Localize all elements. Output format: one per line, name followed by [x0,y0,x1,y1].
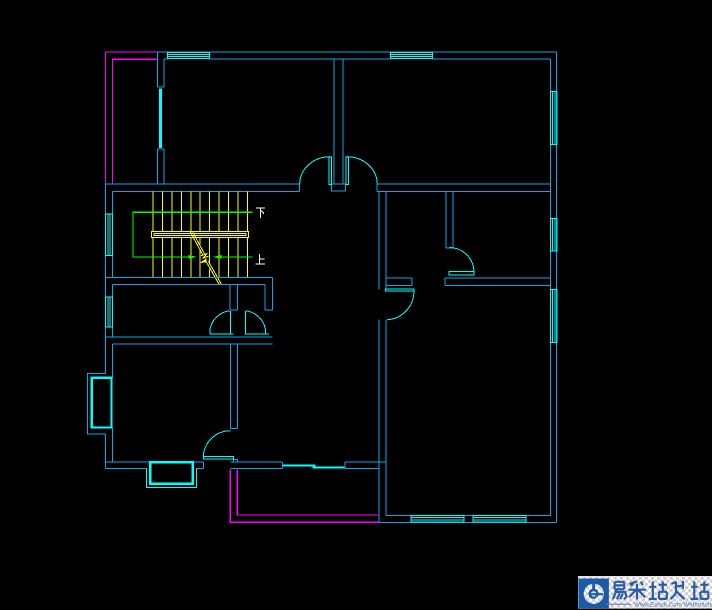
svg-text:Www.Easck.Com Webmaster: Www.Easck.Com Webmaster [634,602,712,609]
